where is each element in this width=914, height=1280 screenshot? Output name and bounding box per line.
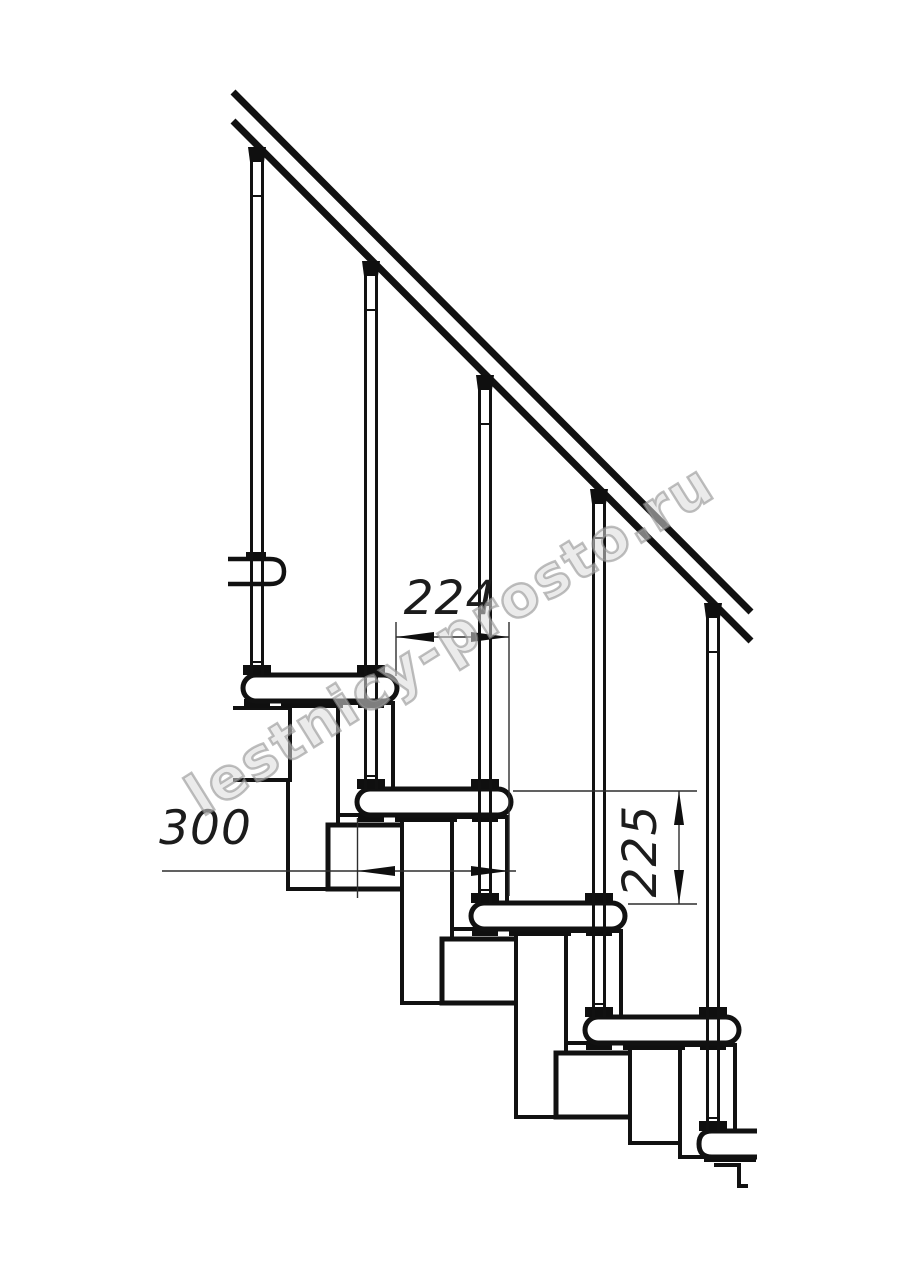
tread [471, 903, 625, 929]
tread-partial [699, 1131, 757, 1157]
handrail-connector [476, 375, 494, 390]
module-box-cut-left [233, 708, 290, 780]
arrowhead-down [674, 870, 684, 904]
handrail-connector [248, 147, 266, 162]
module-box [556, 1053, 631, 1117]
arrowhead-left [396, 632, 434, 642]
baluster-collar [471, 893, 499, 903]
tread [357, 789, 511, 815]
baluster-collar [585, 893, 613, 903]
baluster-collar [471, 779, 499, 789]
baluster-collar [585, 1007, 613, 1017]
module-box [442, 939, 517, 1003]
baluster-collar [357, 779, 385, 789]
baluster-collar [699, 1007, 727, 1017]
tread [243, 675, 397, 701]
module-box [328, 825, 403, 889]
module-column [630, 1045, 680, 1143]
baluster-collar [357, 665, 385, 675]
baluster-collar [243, 665, 271, 675]
handrail-connector [704, 603, 722, 618]
handrail-connector [362, 261, 380, 276]
handrail-connector [590, 489, 608, 504]
tread [585, 1017, 739, 1043]
arrowhead-up [674, 791, 684, 825]
landing-bracket [228, 559, 284, 584]
baluster-collar [699, 1121, 727, 1131]
technical-drawing-page: 224 300 225 lestnicy-prosto.ru [0, 0, 914, 1280]
staircase-drawing [0, 0, 914, 1280]
module-box-partial [714, 1165, 748, 1186]
